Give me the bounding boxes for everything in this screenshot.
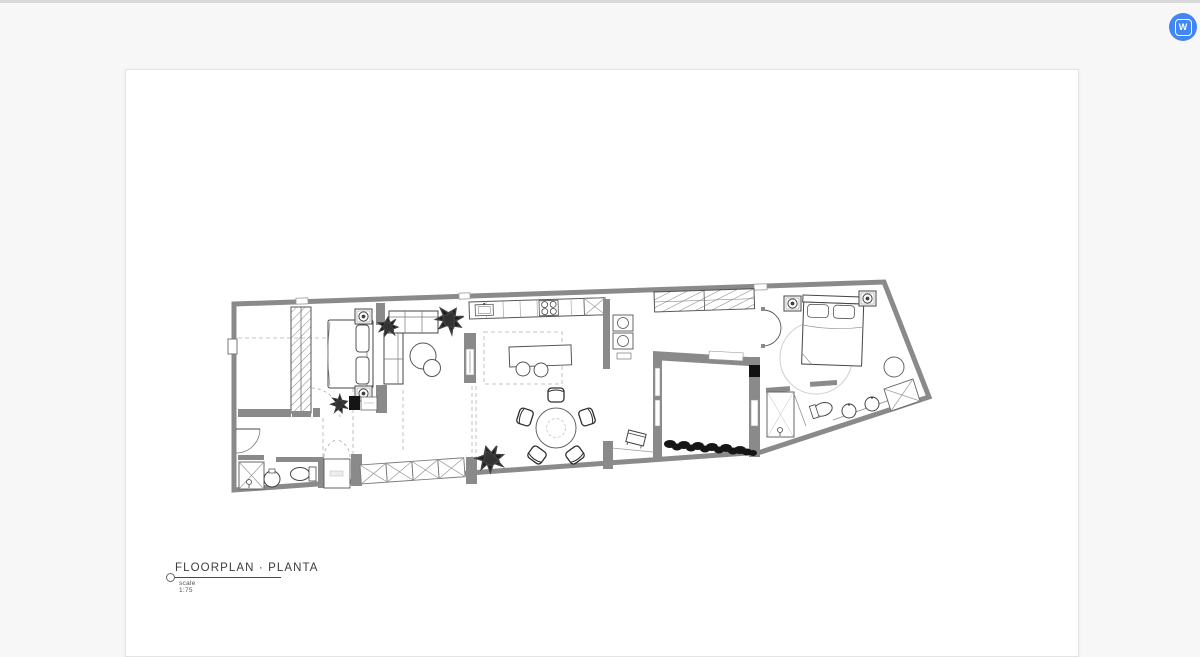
kitchen-sink: [475, 303, 493, 316]
drawing-scale: scale 1:75: [179, 580, 196, 594]
master-bed: [801, 295, 865, 366]
drawing-title: FLOORPLAN · PLANTA: [175, 562, 319, 574]
document-page: FLOORPLAN · PLANTA scale 1:75: [125, 69, 1079, 657]
closet-hatched: [654, 289, 755, 312]
extension-badge[interactable]: W: [1169, 13, 1197, 41]
coffee-table-small: [424, 360, 441, 377]
wall-stub: [376, 303, 385, 325]
pouf: [884, 357, 904, 377]
basin: [865, 397, 879, 411]
speaker-icon: [859, 291, 876, 306]
w-icon: W: [1175, 19, 1192, 36]
kitchen-counter: [469, 298, 605, 319]
bed-single-room: [328, 320, 373, 388]
basin: [842, 404, 856, 418]
side-unit: [361, 397, 377, 410]
speaker-icon: [355, 309, 372, 324]
stove: [539, 300, 558, 316]
stool: [534, 363, 548, 377]
top-divider: [0, 0, 1200, 3]
tall-cabinet: [584, 298, 606, 316]
speaker-icon: [784, 296, 801, 311]
dining-table: [536, 408, 576, 448]
dining-chair: [548, 388, 564, 402]
media-unit: [349, 396, 360, 410]
north-marker-icon: [166, 573, 175, 582]
pillar: [603, 441, 613, 469]
pillar: [466, 457, 477, 484]
wall-niche: [228, 339, 237, 354]
dividing-wall: [603, 299, 610, 369]
title-underline: [175, 577, 281, 578]
toilet: [291, 467, 317, 481]
stool: [516, 362, 530, 376]
shower: [239, 462, 264, 489]
wall-stub: [376, 385, 387, 413]
